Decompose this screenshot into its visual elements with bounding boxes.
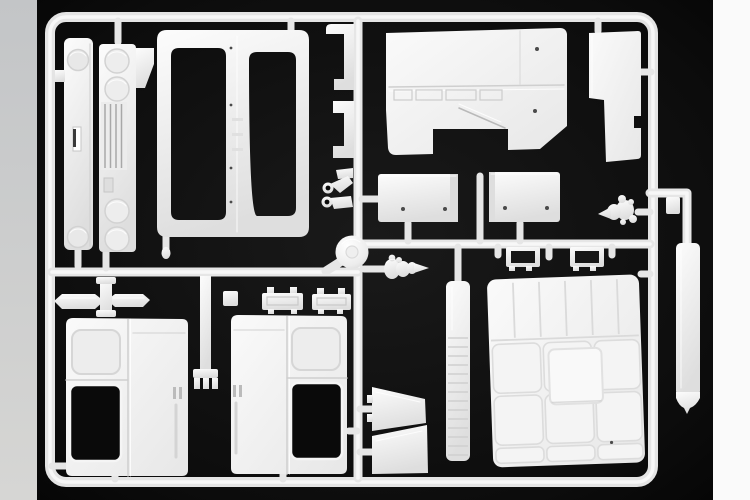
bunk-panel-right [489, 172, 560, 222]
roof-hatch [548, 348, 603, 405]
door-window-right [291, 383, 342, 459]
dome-disc [336, 236, 369, 269]
door-window-left [70, 385, 121, 461]
grille-slats [101, 102, 127, 170]
cab-door-left [66, 318, 188, 476]
bunk-panel-left [378, 174, 458, 222]
ribbed-pillar [446, 281, 470, 461]
sprue-photo [0, 0, 750, 500]
photo-stage [0, 0, 750, 500]
cab-door-right [231, 315, 347, 474]
right-border [713, 0, 750, 500]
left-border [0, 0, 37, 500]
roof-liner-panel [487, 274, 645, 467]
small-tab-part [666, 197, 680, 214]
exhaust-strip [676, 243, 700, 414]
